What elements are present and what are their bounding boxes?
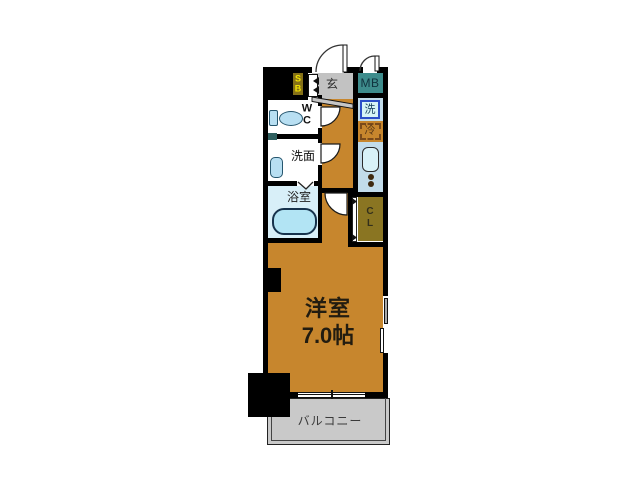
meter-box-label: MB: [361, 77, 380, 89]
main-room-name: 洋室: [305, 298, 351, 320]
main-room-size: 7.0帖: [302, 325, 355, 347]
washer-label: 洗: [365, 105, 376, 116]
corner-pillar-block: [248, 373, 290, 417]
bath-folding-door-icon: [298, 182, 313, 189]
closet-label: C: [366, 207, 373, 217]
shoe-box-label: B: [295, 85, 302, 94]
entrance-label: 玄: [326, 78, 338, 90]
front-door-chevron-icon: [313, 77, 319, 94]
washroom-label: 洗面: [291, 150, 315, 162]
closet-door-chevron-icon: [352, 198, 357, 241]
bathroom-label: 浴室: [287, 191, 311, 203]
fridge-label: 冷: [365, 126, 376, 137]
wc-door-arc-icon: [321, 107, 340, 126]
pillar-block: [268, 268, 281, 292]
main-door-arc-icon: [325, 193, 347, 215]
closet-label: L: [367, 219, 373, 229]
entrance-door-arc-icon: [316, 45, 343, 72]
shoe-box-label: S: [295, 75, 301, 84]
balcony-label: バルコニー: [298, 415, 363, 427]
mb-door-leaf-icon: [375, 56, 379, 71]
entrance-door-leaf-icon: [343, 45, 347, 72]
washroom-door-arc-icon: [321, 144, 340, 163]
mb-door-arc-icon: [360, 56, 375, 71]
wc-label: W: [302, 104, 312, 115]
floorplan-canvas: 玄 MB S B 洗 冷 W C 洗面 浴室 C L 洋室 7.0帖 バルコニー: [0, 0, 640, 480]
door-symbols-overlay: [0, 0, 640, 480]
wc-label: C: [303, 116, 311, 127]
